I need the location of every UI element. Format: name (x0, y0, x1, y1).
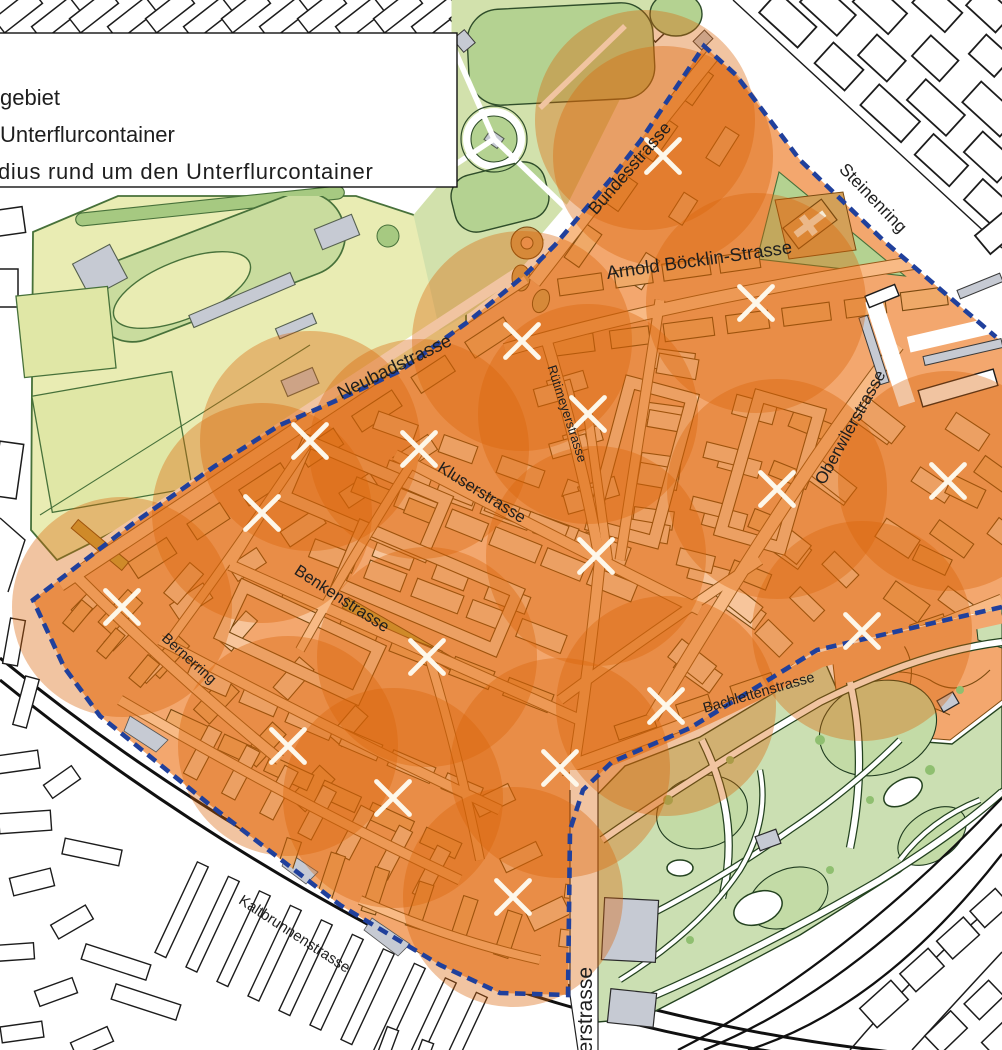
svg-text:Unterflurcontainer: Unterflurcontainer (0, 122, 175, 147)
svg-text:dius rund um den Unterflurcont: dius rund um den Unterflurcontainer (0, 159, 373, 184)
svg-text:erstrasse: erstrasse (574, 967, 597, 1050)
svg-text:gebiet: gebiet (0, 85, 60, 110)
